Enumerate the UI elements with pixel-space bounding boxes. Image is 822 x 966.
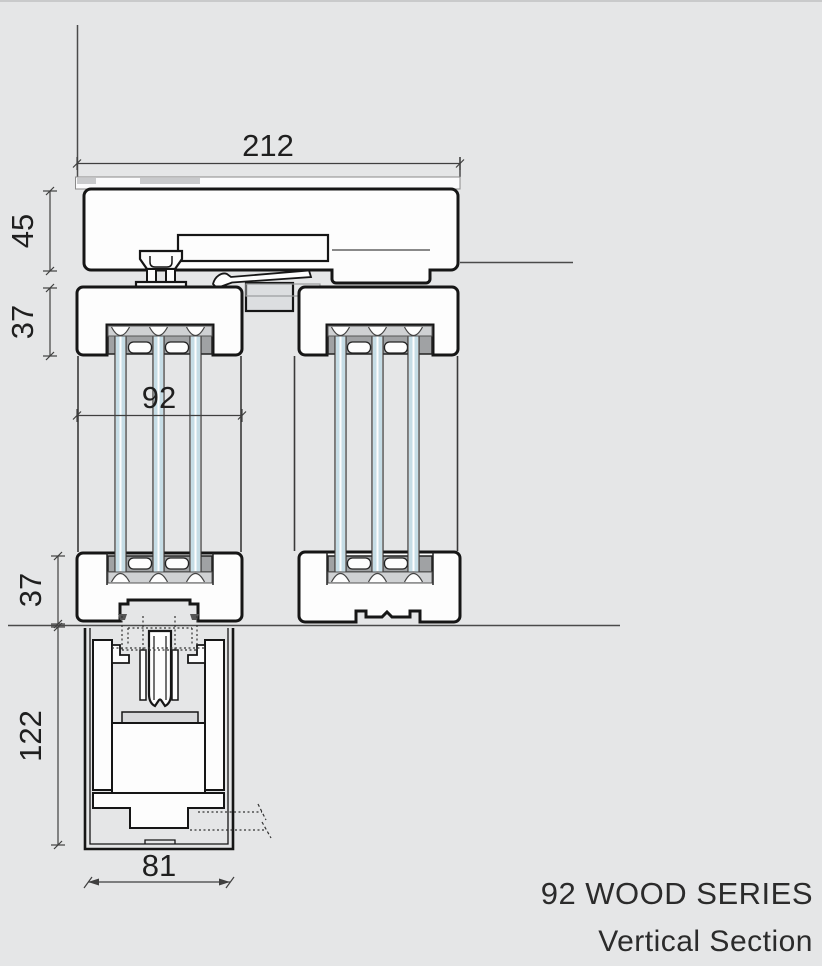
roller-guide-plate [172, 650, 178, 700]
dim-bottom-rail-height: 37 [13, 573, 48, 607]
dim-head-height: 45 [5, 214, 40, 248]
packing-shim [140, 178, 200, 184]
glass-pane-unit [115, 332, 126, 572]
dim-channel-width: 81 [142, 848, 176, 883]
top-edge-line [0, 0, 822, 2]
roller-guide-plate [140, 650, 146, 700]
drawing-title-series: 92 WOOD SERIES [541, 876, 813, 911]
dim-sill-depth: 122 [13, 710, 48, 762]
head-frame [84, 189, 458, 283]
track-body [112, 723, 205, 793]
glass-pane-unit [408, 332, 419, 572]
technical-drawing-canvas: 212 45 37 92 37 122 81 92 WOOD SERIES Ve… [0, 0, 822, 966]
glass-pane-unit [153, 332, 164, 572]
roller-wheel [149, 631, 171, 706]
head-track-insert [178, 235, 328, 261]
drawing-title-view: Vertical Section [598, 925, 813, 958]
dim-top-rail-height: 37 [5, 305, 40, 339]
vertical-section-drawing: 212 45 37 92 37 122 81 92 WOOD SERIES Ve… [0, 0, 822, 966]
glass-pane-unit [190, 332, 201, 572]
glass-pane-unit [372, 332, 383, 572]
track-side-plate [205, 640, 224, 790]
head-packing-strip [76, 177, 461, 189]
interlock-block [246, 283, 293, 311]
packing-shim [77, 178, 96, 184]
dim-overall-width: 212 [242, 128, 294, 163]
dim-sash-thickness: 92 [142, 380, 176, 415]
roller-axle-plate [122, 712, 198, 723]
glass-pane-unit [335, 332, 346, 572]
track-side-plate [93, 640, 112, 790]
